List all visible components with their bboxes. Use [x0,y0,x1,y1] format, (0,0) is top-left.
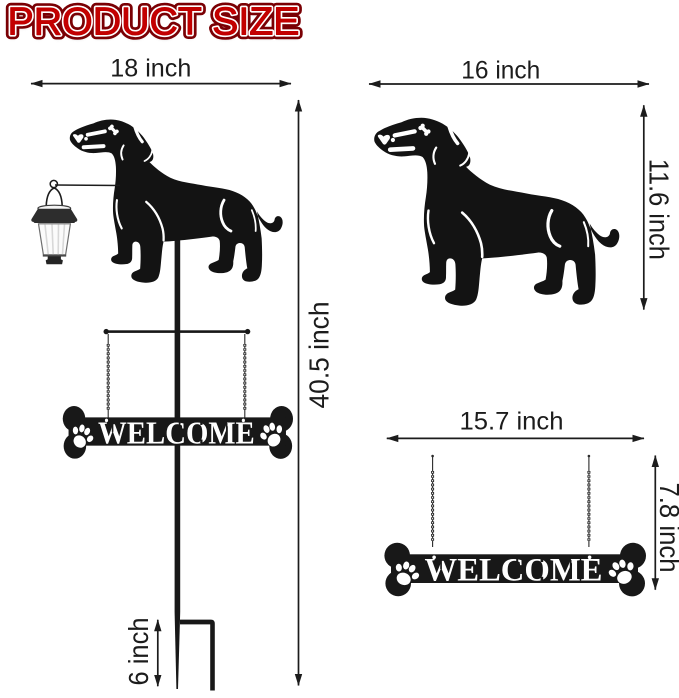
svg-text:PRODUCT SIZE: PRODUCT SIZE [8,0,300,43]
svg-text:16 inch: 16 inch [461,57,540,85]
svg-text:18 inch: 18 inch [110,55,191,83]
svg-text:7.8 inch: 7.8 inch [654,483,679,573]
svg-text:15.7 inch: 15.7 inch [460,407,564,435]
svg-text:40.5 inch: 40.5 inch [304,302,335,409]
svg-text:11.6 inch: 11.6 inch [644,159,675,260]
svg-text:6 inch: 6 inch [123,618,154,686]
